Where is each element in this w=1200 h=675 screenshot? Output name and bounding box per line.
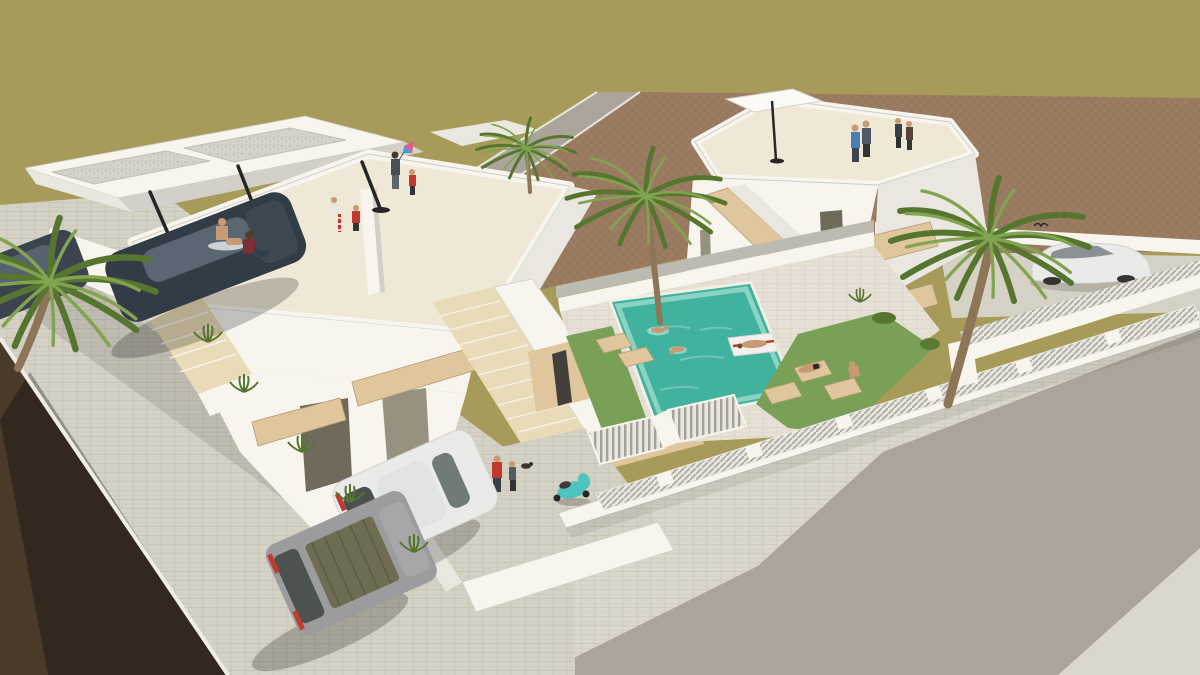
scooter-wheel — [583, 491, 590, 498]
architectural-render: Aerial 3D architectural rendering of a r… — [0, 0, 1200, 675]
dog-head — [529, 462, 533, 466]
scooter-wheel — [554, 495, 561, 502]
garden-bush — [920, 338, 940, 350]
render-canvas: Aerial 3D architectural rendering of a r… — [0, 0, 1200, 675]
car-wheel — [1043, 277, 1061, 285]
umbrella-base — [770, 159, 784, 164]
garden-bush — [872, 312, 896, 324]
